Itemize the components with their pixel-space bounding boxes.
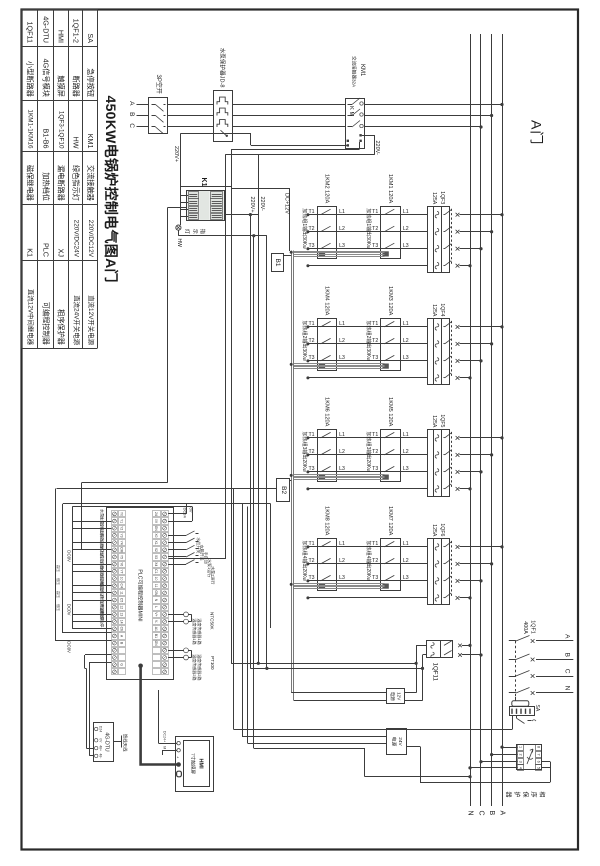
svg-text:A: A	[564, 634, 571, 639]
svg-text:SA: SA	[534, 705, 540, 712]
svg-text:T3: T3	[372, 355, 378, 361]
svg-text:4: 4	[519, 767, 523, 769]
svg-text:L1: L1	[403, 209, 409, 215]
svg-text:1KM1 120A: 1KM1 120A	[387, 174, 393, 203]
svg-text:PT100: PT100	[210, 656, 215, 670]
svg-text:馈线天线: 馈线天线	[121, 734, 128, 752]
svg-text:L3: L3	[339, 466, 345, 472]
svg-text:DC+12V: DC+12V	[283, 193, 289, 214]
svg-text:GN: GN	[154, 641, 158, 647]
svg-text:1: 1	[519, 746, 523, 748]
svg-text:T1: T1	[308, 432, 314, 438]
svg-text:125A: 125A	[431, 415, 437, 428]
svg-text:X0: X0	[154, 533, 158, 537]
svg-text:24V: 24V	[397, 737, 403, 746]
svg-text:加热组4输出20Kw: 加热组4输出20Kw	[301, 541, 308, 582]
svg-text:B: B	[128, 112, 135, 116]
svg-text:T1: T1	[308, 321, 314, 327]
svg-text:48-: 48-	[98, 753, 102, 758]
svg-text:5: 5	[536, 767, 540, 769]
svg-text:C: C	[478, 811, 485, 816]
svg-text:L1: L1	[339, 432, 345, 438]
svg-text:HMI: HMI	[57, 30, 66, 43]
svg-text:12: 12	[120, 605, 124, 609]
svg-text:11: 11	[154, 584, 158, 588]
svg-text:HW: HW	[71, 137, 80, 149]
svg-text:低压: 低压	[56, 578, 61, 586]
svg-text:T3: T3	[308, 575, 314, 581]
svg-text:L1: L1	[403, 432, 409, 438]
svg-text:L3: L3	[339, 575, 345, 581]
svg-text:4G信号模块: 4G信号模块	[41, 59, 50, 97]
svg-text:11: 11	[120, 591, 124, 595]
svg-text:C5: C5	[120, 598, 124, 602]
svg-text:Y4: Y4	[120, 541, 124, 545]
svg-text:T3: T3	[372, 243, 378, 249]
svg-text:L2: L2	[339, 338, 345, 344]
svg-text:X3: X3	[154, 555, 158, 559]
svg-text:V-: V-	[154, 620, 158, 623]
svg-text:T2: T2	[308, 338, 314, 344]
svg-text:T1: T1	[372, 541, 378, 547]
svg-text:1QF6: 1QF6	[439, 523, 445, 536]
svg-text:L3: L3	[403, 466, 409, 472]
svg-text:7: 7	[536, 754, 540, 756]
svg-text:T2: T2	[372, 449, 378, 455]
svg-text:B1-B6: B1-B6	[41, 129, 50, 149]
svg-text:N: N	[564, 686, 571, 691]
svg-text:加热组1输出30Kw: 加热组1输出30Kw	[301, 208, 308, 249]
svg-text:T2: T2	[372, 558, 378, 564]
svg-text:K1: K1	[200, 178, 207, 187]
svg-text:K M: K M	[348, 106, 354, 116]
svg-text:1KM1-1KM16: 1KM1-1KM16	[26, 109, 33, 149]
svg-text:T2: T2	[372, 226, 378, 232]
svg-text:L3: L3	[403, 243, 409, 249]
svg-text:4G-DTU: 4G-DTU	[104, 732, 110, 752]
svg-text:1KM3 120A: 1KM3 120A	[387, 286, 393, 315]
svg-text:L1: L1	[403, 321, 409, 327]
svg-text:XJ: XJ	[57, 249, 66, 258]
svg-text:A: A	[499, 811, 506, 816]
svg-text:T3: T3	[372, 466, 378, 472]
svg-text:水泵2运行: 水泵2运行	[211, 566, 217, 584]
svg-text:可编程控制器: 可编程控制器	[41, 302, 50, 345]
svg-text:B: B	[488, 811, 495, 816]
svg-text:KM1: KM1	[359, 64, 365, 77]
svg-text:0V: 0V	[154, 519, 158, 524]
svg-text:NTC50K: NTC50K	[209, 612, 214, 631]
svg-text:加热档位: 加热档位	[41, 172, 50, 201]
svg-text:K1: K1	[25, 248, 34, 257]
svg-text:T1: T1	[372, 321, 378, 327]
svg-text:3P空开: 3P空开	[155, 75, 163, 94]
svg-text:高压: 高压	[56, 565, 61, 573]
svg-text:T2: T2	[308, 449, 314, 455]
svg-text:磁保继电器: 磁保继电器	[25, 165, 34, 201]
svg-text:T1: T1	[308, 541, 314, 547]
svg-text:125A: 125A	[431, 304, 437, 317]
svg-text:L1: L1	[339, 541, 345, 547]
svg-text:温度传感器1路: 温度传感器1路	[197, 618, 203, 644]
svg-text:1QF5: 1QF5	[439, 414, 445, 427]
svg-text:加热组3输出20Kw: 加热组3输出20Kw	[365, 432, 372, 473]
svg-text:1QF11: 1QF11	[25, 22, 34, 43]
svg-text:G: G	[120, 663, 124, 666]
svg-text:1QF4: 1QF4	[439, 303, 445, 316]
svg-text:12V: 12V	[397, 692, 402, 701]
svg-text:A1: A1	[154, 627, 158, 631]
svg-text:电源: 电源	[389, 692, 396, 702]
svg-text:1QF11: 1QF11	[431, 663, 438, 682]
svg-text:M: M	[162, 746, 166, 749]
svg-text:Y7: Y7	[120, 569, 124, 573]
svg-text:C6: C6	[120, 627, 124, 631]
svg-text:L: L	[154, 606, 158, 608]
svg-text:X2: X2	[154, 548, 158, 552]
svg-text:HMI: HMI	[197, 758, 203, 769]
svg-text:T1: T1	[372, 432, 378, 438]
svg-text:断路器: 断路器	[71, 75, 80, 97]
svg-text:急停按钮: 急停按钮	[86, 68, 95, 97]
svg-text:X1: X1	[154, 541, 158, 545]
svg-text:PLC可编程控制器MINI: PLC可编程控制器MINI	[136, 569, 144, 621]
svg-text:1KM2 120A: 1KM2 120A	[323, 174, 329, 203]
svg-text:D24: D24	[98, 726, 102, 732]
svg-text:Y3: Y3	[120, 533, 124, 537]
svg-text:C: C	[564, 669, 571, 674]
svg-text:L2: L2	[403, 449, 409, 455]
svg-text:14: 14	[120, 620, 124, 624]
svg-text:T3: T3	[308, 355, 314, 361]
svg-text:B1: B1	[154, 634, 158, 638]
svg-text:PLC: PLC	[41, 243, 50, 257]
svg-text:B2: B2	[280, 486, 287, 494]
svg-text:加热组4输出20Kw: 加热组4输出20Kw	[365, 541, 372, 582]
svg-text:L2: L2	[339, 558, 345, 564]
svg-text:24: 24	[154, 512, 158, 516]
svg-text:1QF3-1QF10: 1QF3-1QF10	[58, 111, 65, 149]
svg-text:220V-: 220V-	[374, 141, 380, 156]
svg-text:绿色指示灯: 绿色指示灯	[71, 165, 80, 201]
svg-text:L3: L3	[339, 355, 345, 361]
svg-text:直流12V开关电源: 直流12V开关电源	[87, 295, 96, 345]
svg-text:125A: 125A	[431, 192, 437, 205]
svg-text:T1: T1	[308, 209, 314, 215]
svg-text:SA: SA	[86, 33, 95, 43]
svg-text:Y0: Y0	[120, 512, 124, 516]
svg-text:Y1: Y1	[120, 519, 124, 523]
svg-text:B1: B1	[274, 259, 281, 267]
svg-text:400A: 400A	[522, 621, 528, 634]
svg-text:X4: X4	[154, 562, 158, 566]
svg-text:1KM4 120A: 1KM4 120A	[323, 286, 329, 315]
svg-text:直流12V中间继电器: 直流12V中间继电器	[26, 289, 35, 346]
svg-text:125A: 125A	[431, 524, 437, 537]
svg-text:T2: T2	[372, 338, 378, 344]
svg-text:温度传感器2路: 温度传感器2路	[197, 654, 203, 680]
svg-text:相序保护器: 相序保护器	[57, 309, 66, 345]
svg-text:48+: 48+	[98, 745, 102, 751]
svg-text:L2: L2	[403, 338, 409, 344]
svg-text:HW: HW	[176, 239, 182, 248]
svg-text:L2: L2	[339, 226, 345, 232]
svg-text:1QF3: 1QF3	[439, 191, 445, 204]
svg-text:L3: L3	[403, 575, 409, 581]
svg-text:KM1: KM1	[86, 134, 95, 149]
svg-text:7寸触摸屏: 7寸触摸屏	[190, 753, 197, 774]
svg-text:1QF1-2: 1QF1-2	[71, 19, 80, 43]
svg-text:小型断路器: 小型断路器	[25, 61, 34, 97]
svg-text:6: 6	[536, 761, 540, 763]
svg-text:Y5: Y5	[120, 555, 124, 559]
svg-text:220V-: 220V-	[259, 197, 265, 212]
svg-text:T3: T3	[372, 575, 378, 581]
svg-text:C: C	[128, 123, 135, 128]
svg-text:高压: 高压	[56, 591, 61, 599]
svg-text:1KM7 120A: 1KM7 120A	[387, 506, 393, 535]
svg-text:DC24: DC24	[182, 508, 187, 519]
svg-text:A: A	[128, 101, 135, 106]
svg-text:加热组1输出30Kw: 加热组1输出30Kw	[365, 208, 372, 249]
svg-text:13: 13	[120, 613, 124, 617]
svg-text:L2: L2	[403, 558, 409, 564]
svg-text:220V+: 220V+	[249, 197, 255, 213]
svg-text:2号加热停: 2号加热停	[98, 608, 105, 627]
svg-text:L1: L1	[339, 209, 345, 215]
svg-text:10: 10	[154, 577, 158, 581]
svg-text:2: 2	[519, 754, 523, 756]
svg-text:低压: 低压	[56, 604, 61, 612]
svg-text:V+: V+	[154, 612, 158, 616]
svg-text:A门: A门	[529, 120, 545, 145]
svg-text:C1: C1	[154, 569, 158, 573]
svg-text:L2: L2	[403, 226, 409, 232]
svg-text:Y2: Y2	[120, 526, 124, 530]
svg-text:1KM5 120A: 1KM5 120A	[387, 397, 393, 426]
svg-text:L3: L3	[403, 355, 409, 361]
svg-text:220V/DC24V: 220V/DC24V	[72, 220, 79, 258]
svg-text:交流接触器: 交流接触器	[86, 165, 95, 201]
svg-text:4G-DTU: 4G-DTU	[41, 16, 50, 43]
svg-text:T3: T3	[308, 243, 314, 249]
svg-text:GN: GN	[154, 590, 158, 596]
svg-text:220V+: 220V+	[173, 146, 179, 162]
svg-text:交流接触器32A: 交流接触器32A	[351, 56, 358, 88]
svg-text:L3: L3	[339, 243, 345, 249]
svg-text:B: B	[564, 653, 571, 657]
svg-text:CM: CM	[120, 547, 124, 552]
svg-text:电源: 电源	[390, 737, 397, 747]
svg-text:10: 10	[120, 577, 124, 581]
svg-text:触摸屏: 触摸屏	[57, 75, 66, 97]
svg-text:1QF1: 1QF1	[530, 620, 536, 633]
svg-text:L2: L2	[339, 449, 345, 455]
svg-text:L1: L1	[403, 541, 409, 547]
svg-text:L1: L1	[339, 321, 345, 327]
svg-text:加热组2输出30Kw: 加热组2输出30Kw	[301, 321, 308, 362]
svg-text:加热组3输出20Kw: 加热组3输出20Kw	[301, 432, 308, 473]
svg-text:1KM6 120A: 1KM6 120A	[323, 397, 329, 426]
svg-text:8: 8	[536, 746, 540, 748]
svg-text:T2: T2	[308, 226, 314, 232]
svg-text:漏电断路器: 漏电断路器	[57, 165, 66, 201]
svg-text:220V/DC12V: 220V/DC12V	[87, 220, 94, 258]
svg-text:1KM8 120A: 1KM8 120A	[323, 506, 329, 535]
svg-text:3: 3	[519, 761, 523, 763]
svg-text:直流24V开关电源: 直流24V开关电源	[72, 295, 81, 345]
svg-text:DC24+: DC24+	[162, 731, 166, 742]
svg-text:DC0V: DC0V	[66, 641, 71, 653]
svg-text:0V: 0V	[188, 508, 193, 513]
svg-text:T1: T1	[372, 209, 378, 215]
svg-text:加热组2输出30Kw: 加热组2输出30Kw	[365, 321, 372, 362]
svg-text:T3: T3	[308, 466, 314, 472]
svg-text:GN: GN	[154, 526, 158, 532]
svg-text:C4: C4	[120, 584, 124, 588]
svg-text:T2: T2	[308, 558, 314, 564]
svg-text:0V: 0V	[98, 738, 102, 743]
svg-text:DC0V: DC0V	[66, 550, 71, 562]
svg-text:DC0V: DC0V	[66, 604, 71, 616]
svg-text:Y6: Y6	[120, 562, 124, 566]
svg-text:450KW电锅炉控制电气图A门: 450KW电锅炉控制电气图A门	[103, 96, 119, 283]
svg-text:水泵保护器JD-8: 水泵保护器JD-8	[218, 48, 226, 88]
svg-text:N: N	[467, 811, 474, 816]
